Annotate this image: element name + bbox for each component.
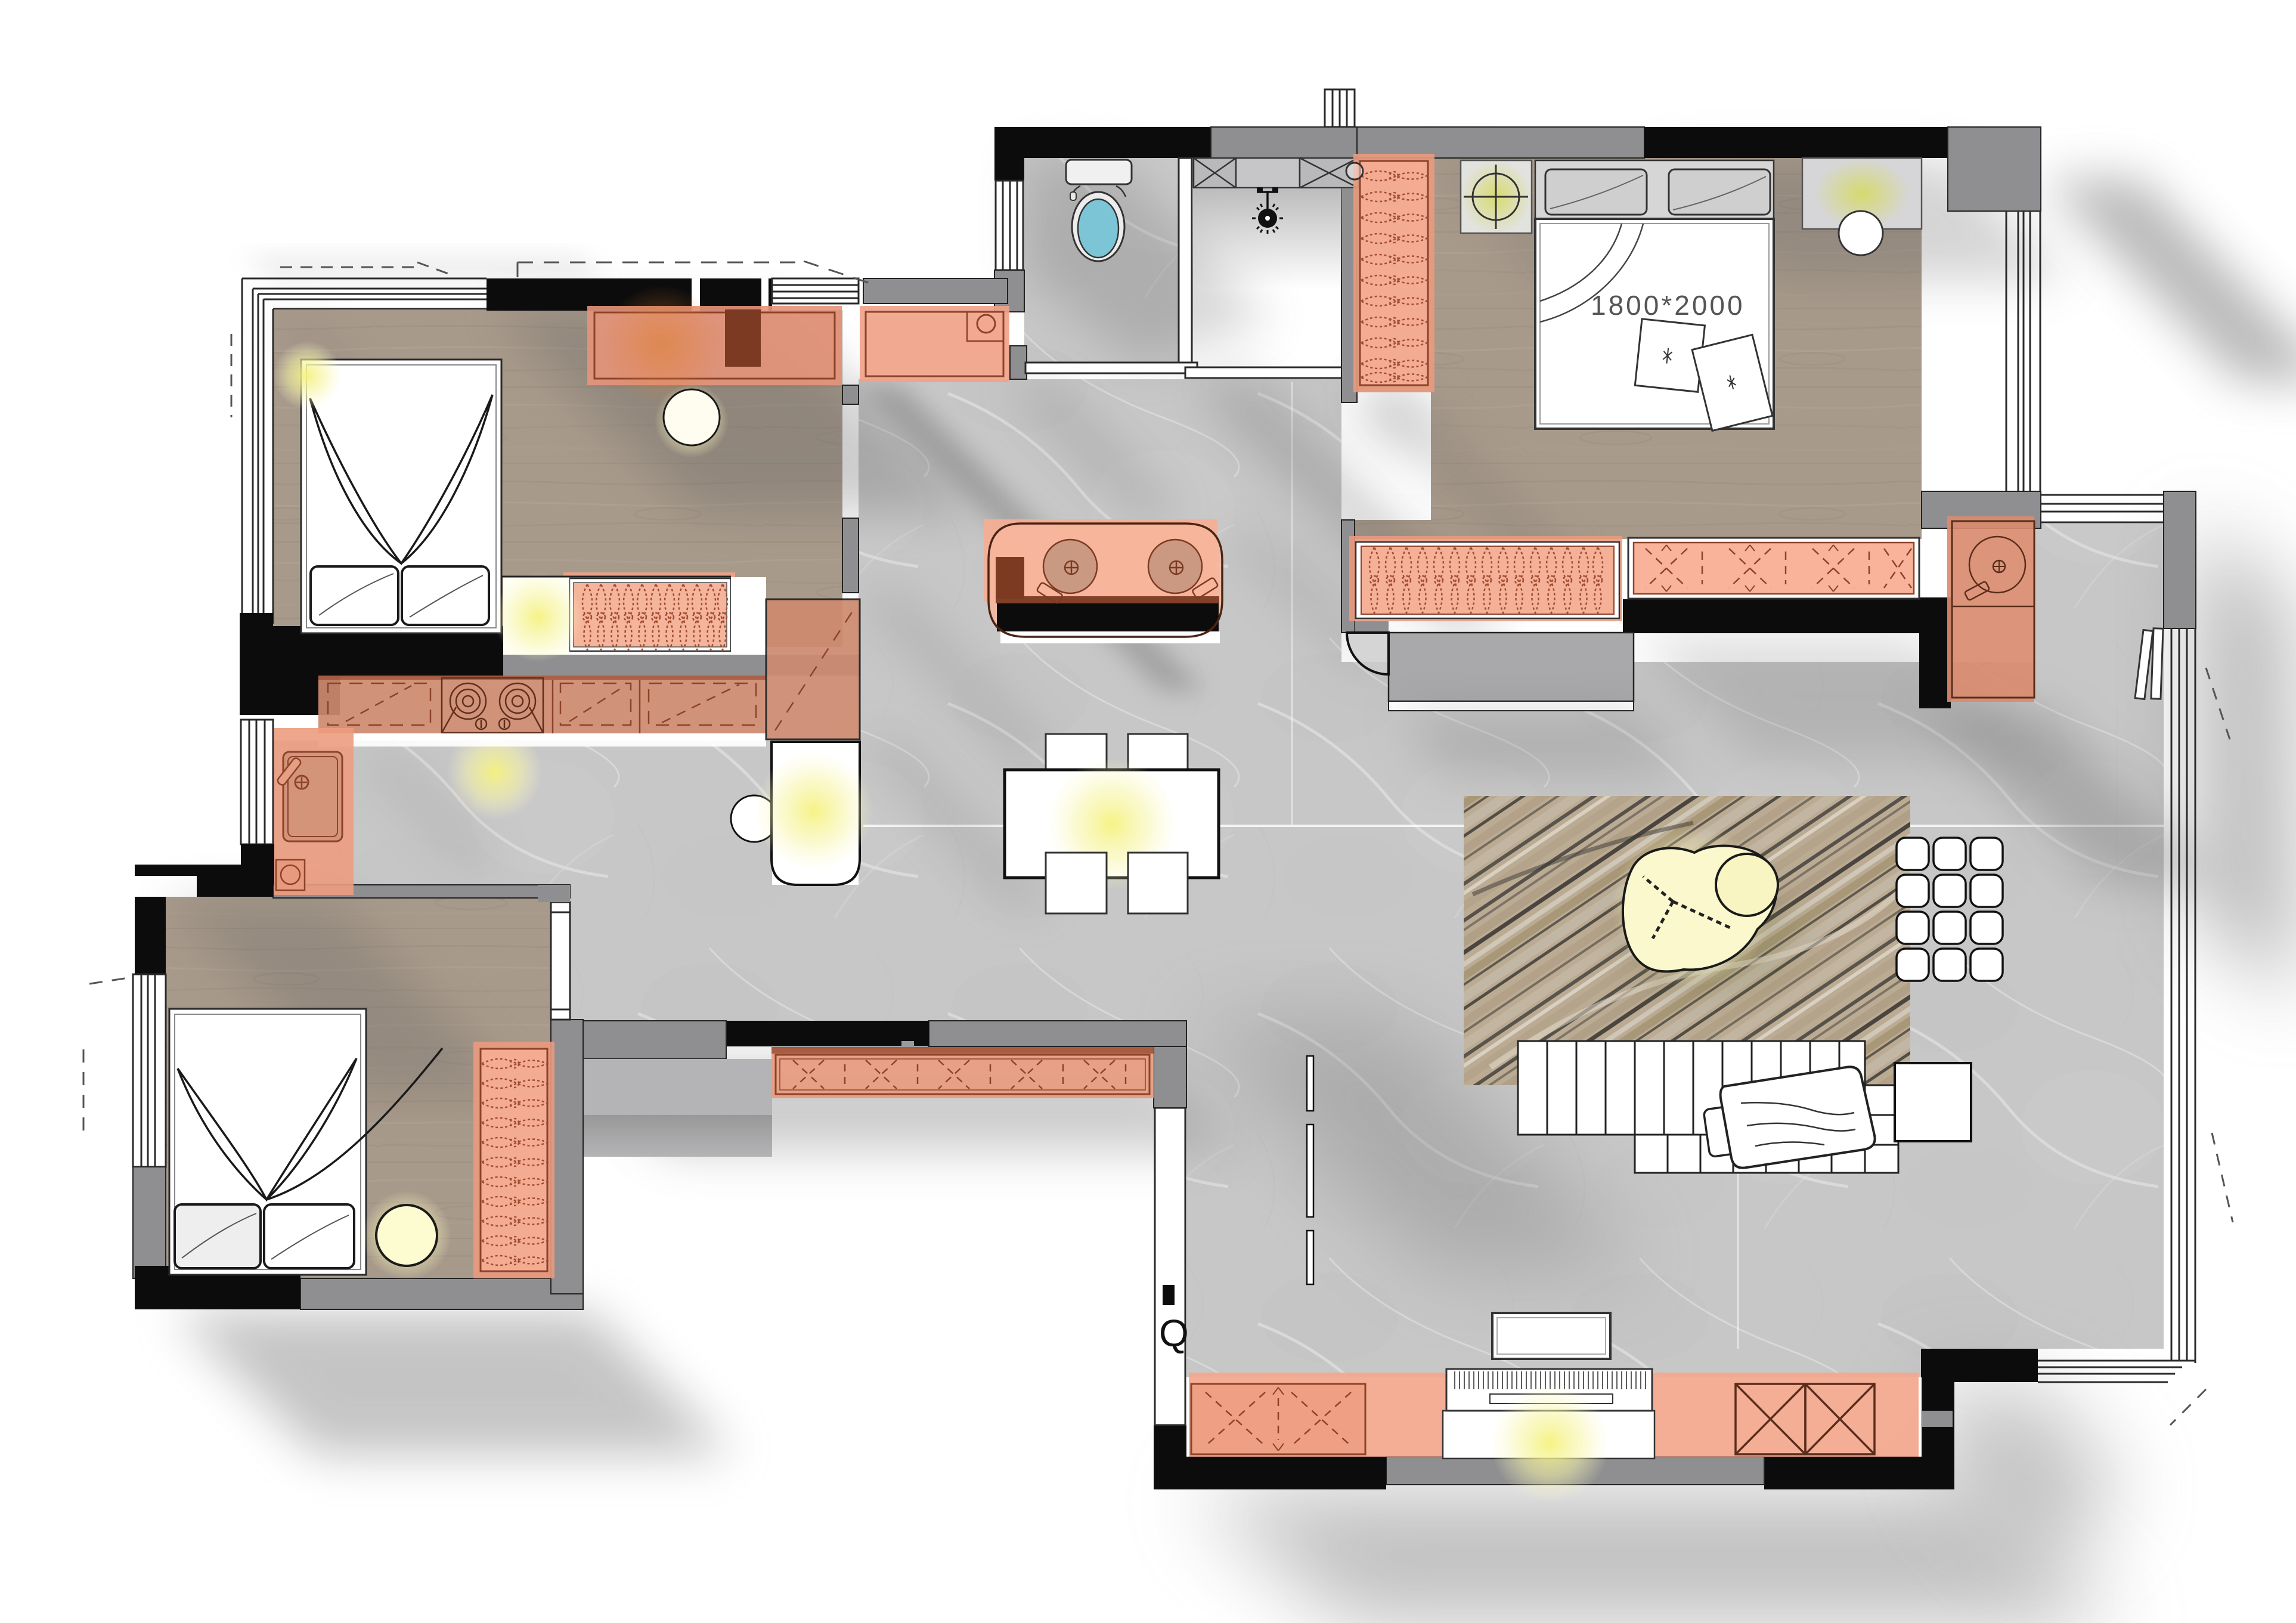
svg-text:1800*2000: 1800*2000 — [1591, 290, 1745, 321]
svg-text:Q: Q — [1159, 1312, 1189, 1355]
